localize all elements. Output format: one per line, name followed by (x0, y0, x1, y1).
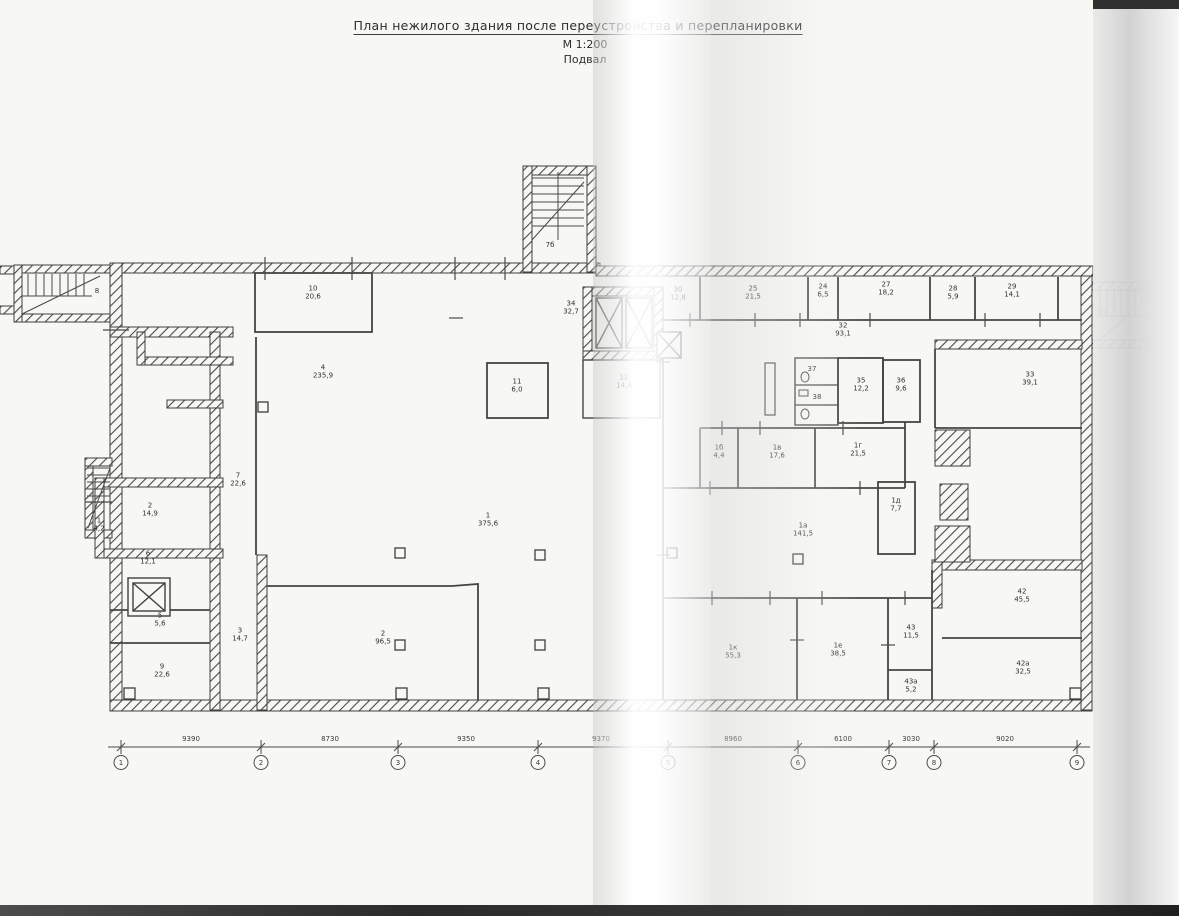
plan-floor-name: Подвал (564, 53, 607, 66)
walls-hatched (0, 166, 1168, 711)
plan-scale: М 1:200 (563, 38, 608, 51)
scanned-floorplan-page: План нежилого здания после переустройств… (0, 0, 1179, 916)
wc-fixtures (799, 372, 809, 419)
dimension-line (108, 740, 1090, 754)
plan-title: План нежилого здания после переустройств… (354, 18, 803, 35)
floor-plan-drawing (0, 0, 1179, 916)
opening-ticks (103, 257, 1040, 645)
